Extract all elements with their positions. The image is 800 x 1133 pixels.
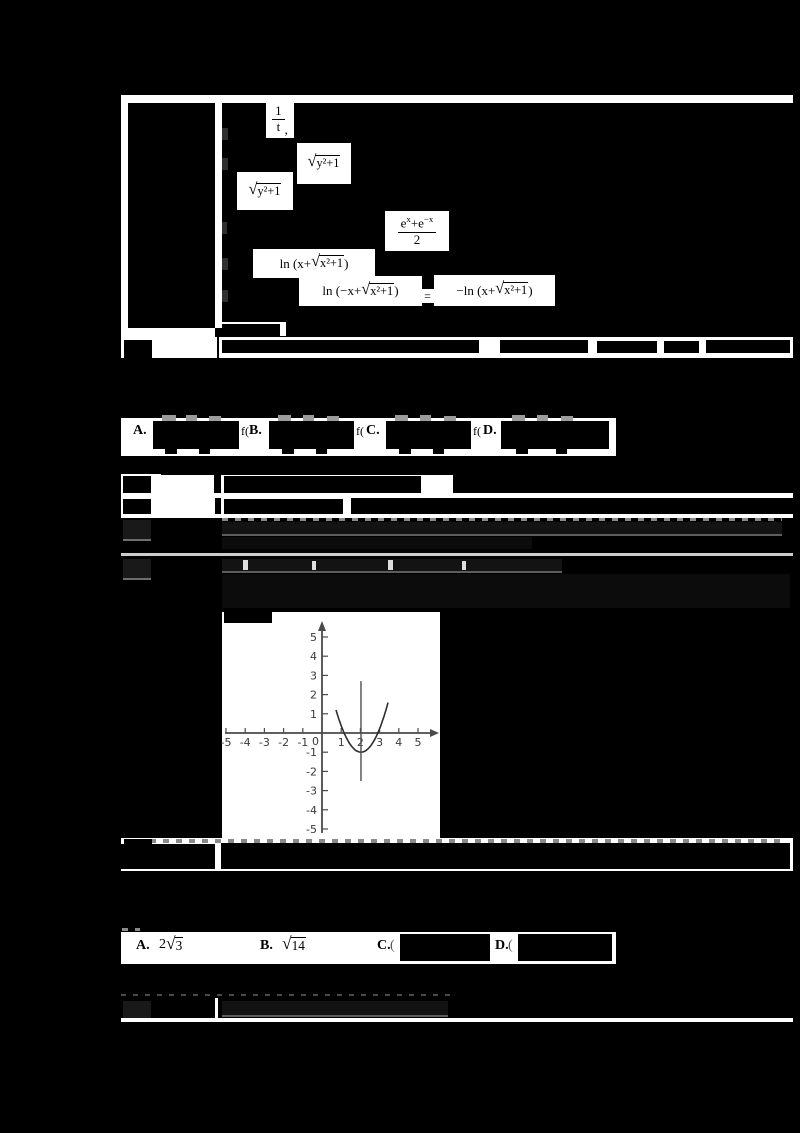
kaodian-label-cell: 考点 bbox=[121, 475, 215, 494]
formula-fragment bbox=[199, 449, 210, 454]
text-fragment bbox=[121, 994, 451, 996]
radical-sign: √ bbox=[282, 935, 292, 953]
q2-option-a-formula[interactable]: 2√3 bbox=[159, 937, 183, 955]
text-remnant bbox=[222, 258, 228, 270]
text-fragment bbox=[122, 928, 140, 931]
review-label: 点评 bbox=[124, 340, 152, 359]
kaodian-content-cell: 二次函数的图象；二次函数的性质 bbox=[221, 475, 453, 494]
svg-text:-1: -1 bbox=[306, 746, 317, 759]
formula-frac-1-over-t: 1t, bbox=[266, 100, 294, 138]
q1-option-c-letter[interactable]: C. bbox=[366, 423, 380, 439]
fenxi-label: 分析 bbox=[123, 520, 151, 539]
redacted-text-line bbox=[597, 341, 657, 353]
formula-fragment bbox=[420, 415, 431, 421]
formula-fragment bbox=[516, 449, 528, 454]
formula-fragment bbox=[556, 449, 567, 454]
radical-sign: √ bbox=[361, 281, 370, 297]
text-fragment bbox=[243, 560, 248, 570]
neg-ln-prefix: −ln (x+ bbox=[456, 283, 495, 299]
q2-option-b-letter[interactable]: B. bbox=[260, 938, 273, 954]
radical-sign: √ bbox=[495, 280, 504, 296]
radicand: 14 bbox=[291, 937, 306, 955]
redacted-text-line bbox=[500, 340, 588, 353]
svg-text:-5: -5 bbox=[221, 736, 232, 749]
q1-option-d-letter[interactable]: D. bbox=[483, 423, 497, 439]
table1-left-border bbox=[121, 95, 128, 337]
divider-line bbox=[217, 337, 219, 358]
text-fragment bbox=[462, 561, 466, 570]
svg-text:-3: -3 bbox=[259, 736, 270, 749]
svg-text:4: 4 bbox=[310, 650, 317, 663]
redacted-analysis-line bbox=[222, 522, 782, 536]
formula-ln-neg: ln (−x+√x²+1) bbox=[299, 276, 422, 306]
radicand: y²+1 bbox=[256, 183, 281, 199]
redacted-text-line bbox=[222, 340, 479, 353]
formula-fragment bbox=[327, 416, 339, 421]
close-paren: ) bbox=[528, 283, 532, 299]
q2-d-paren: ( bbox=[508, 938, 513, 954]
radicand: y²+1 bbox=[315, 155, 340, 171]
formula-fragment bbox=[162, 415, 176, 421]
denominator: t bbox=[275, 120, 283, 135]
svg-text:1: 1 bbox=[310, 708, 317, 721]
svg-text:-2: -2 bbox=[306, 765, 317, 778]
equals-sign: = bbox=[424, 289, 431, 304]
redacted-label-cell bbox=[121, 844, 215, 869]
text-remnant bbox=[222, 290, 228, 302]
svg-text:5: 5 bbox=[415, 736, 422, 749]
q2-option-a-letter[interactable]: A. bbox=[136, 938, 150, 954]
text-remnant bbox=[222, 128, 228, 140]
table3-divider bbox=[215, 998, 218, 1018]
table1-column-divider bbox=[215, 103, 222, 328]
numerator: ex+e−x bbox=[398, 214, 437, 232]
formula-cosh: ex+e−x 2 bbox=[385, 211, 449, 251]
radicand: x²+1 bbox=[503, 282, 528, 298]
redacted-solution-block bbox=[222, 574, 790, 608]
formula-fragment bbox=[433, 449, 444, 454]
q1-option-b-formula-redacted[interactable] bbox=[269, 421, 354, 449]
radicand: x²+1 bbox=[319, 255, 344, 271]
formula-ln-pos: ln (x+√x²+1) bbox=[253, 249, 375, 278]
svg-text:-3: -3 bbox=[306, 785, 317, 798]
q2-option-c-letter[interactable]: C. bbox=[377, 938, 391, 954]
q1-option-c-formula-redacted[interactable] bbox=[386, 421, 471, 449]
formula-fragment bbox=[186, 415, 197, 421]
text-fragment bbox=[312, 561, 316, 570]
formula-fragment bbox=[209, 416, 221, 421]
answer-ghost-text: 故选：C． bbox=[222, 324, 280, 338]
redacted-review-text bbox=[221, 843, 790, 869]
ln-prefix: ln (x+ bbox=[280, 256, 312, 272]
ln-prefix: ln (−x+ bbox=[322, 283, 361, 299]
svg-text:5: 5 bbox=[310, 631, 317, 644]
formula-fragment bbox=[399, 449, 411, 454]
q2-option-d-formula-redacted[interactable] bbox=[518, 934, 612, 961]
numerator: 1 bbox=[272, 104, 285, 120]
document-page: 1t, √y²+1 √y²+1 ex+e−x 2 ln (x+√x²+1) ln… bbox=[0, 0, 800, 1133]
text-remnant bbox=[222, 158, 228, 170]
coefficient: 2 bbox=[159, 937, 166, 953]
q1-option-d-formula-redacted[interactable] bbox=[501, 421, 609, 449]
jieda-label: 解答 bbox=[123, 559, 151, 578]
q2-option-c-formula-redacted[interactable] bbox=[400, 934, 490, 961]
table1-top-border bbox=[121, 95, 793, 103]
text-remnant bbox=[222, 222, 227, 234]
formula-sqrt-y2-plus-1-upper: √y²+1 bbox=[297, 143, 351, 184]
close-paren: ) bbox=[344, 256, 348, 272]
plus-e: +e bbox=[411, 216, 424, 231]
formula-sqrt-y2-plus-1-lower: √y²+1 bbox=[237, 172, 293, 210]
close-paren: ) bbox=[394, 283, 398, 299]
exp-neg-x: −x bbox=[424, 214, 433, 224]
comma: , bbox=[285, 122, 288, 138]
formula-fragment bbox=[395, 415, 408, 421]
redacted-text-line bbox=[706, 340, 790, 353]
q1-option-a-formula-redacted[interactable] bbox=[153, 421, 239, 449]
radical-sign: √ bbox=[311, 253, 320, 269]
redacted-analysis-line bbox=[222, 537, 532, 549]
review-row-2: 点评 bbox=[121, 838, 793, 871]
formula-fragment bbox=[303, 415, 314, 421]
svg-text:2: 2 bbox=[310, 689, 317, 702]
svg-text:3: 3 bbox=[376, 736, 383, 749]
formula-fragment bbox=[561, 416, 573, 421]
formula-fragment bbox=[316, 449, 327, 454]
denominator: 2 bbox=[412, 233, 423, 248]
q1-tail-c: f( bbox=[473, 424, 481, 439]
svg-text:-4: -4 bbox=[306, 804, 317, 817]
table1-bottom-separator bbox=[121, 328, 215, 337]
formula-equals: = bbox=[421, 289, 434, 303]
formula-fragment bbox=[282, 449, 294, 454]
answer-highlight: 故选：C． bbox=[222, 322, 286, 336]
svg-text:4: 4 bbox=[395, 736, 402, 749]
q1-tail-a: f( bbox=[241, 424, 249, 439]
q1-option-a-letter[interactable]: A. bbox=[133, 423, 147, 439]
q2-c-paren: ( bbox=[390, 938, 395, 954]
q2-option-b-formula[interactable]: √14 bbox=[282, 937, 306, 955]
svg-text:3: 3 bbox=[310, 669, 317, 682]
formula-fragment bbox=[537, 415, 548, 421]
radical-sign: √ bbox=[308, 153, 317, 169]
svg-text:-2: -2 bbox=[278, 736, 289, 749]
review-row-1: 点评 bbox=[121, 337, 793, 358]
formula-fragment bbox=[512, 415, 525, 421]
redacted-text bbox=[224, 612, 272, 623]
formula-fragment bbox=[444, 416, 456, 421]
radicand: x²+1 bbox=[369, 283, 394, 299]
row-separator bbox=[121, 553, 793, 556]
text-top-fringe bbox=[222, 518, 782, 521]
svg-text:0: 0 bbox=[312, 735, 319, 748]
radical-sign: √ bbox=[166, 935, 176, 953]
text-fragment bbox=[388, 560, 393, 570]
redacted-text-line bbox=[664, 341, 699, 353]
svg-text:-5: -5 bbox=[306, 823, 317, 836]
formula-fragment bbox=[165, 449, 177, 454]
q1-option-b-letter[interactable]: B. bbox=[249, 423, 262, 439]
formula-fragment bbox=[278, 415, 291, 421]
formula-ln-rhs: −ln (x+√x²+1) bbox=[434, 275, 555, 306]
radical-sign: √ bbox=[249, 181, 258, 197]
q1-tail-b: f( bbox=[356, 424, 364, 439]
redacted-keypoint-line bbox=[222, 1001, 448, 1017]
svg-text:1: 1 bbox=[338, 736, 345, 749]
q2-option-d-letter[interactable]: D. bbox=[495, 938, 509, 954]
svg-text:-4: -4 bbox=[240, 736, 251, 749]
table3-bottom-border bbox=[121, 1018, 793, 1022]
function-graph: -5-4-3-2-11234554321-1-2-3-4-50 bbox=[222, 612, 440, 838]
